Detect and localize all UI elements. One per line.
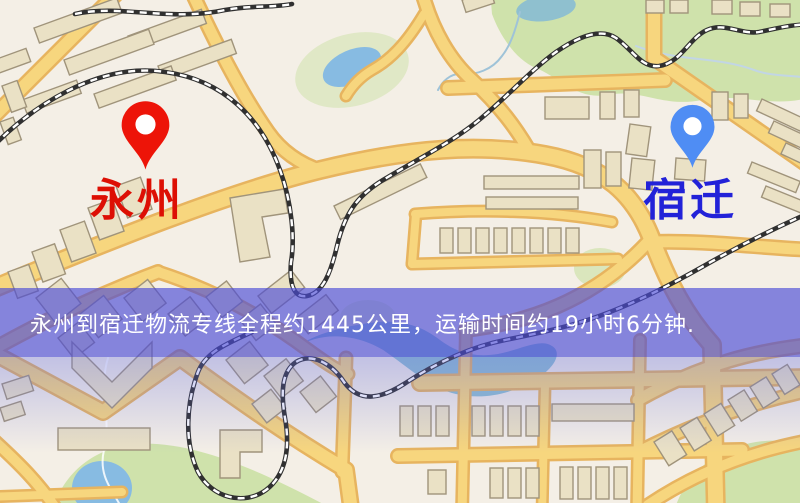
origin-city-label: 永州 [90, 179, 184, 223]
red-location-pin-icon [119, 99, 172, 171]
map-canvas [0, 0, 800, 503]
blue-location-pin-icon [668, 103, 717, 169]
route-info-banner: 永州到宿迁物流专线全程约1445公里，运输时间约19小时6分钟. [0, 288, 800, 357]
destination-city-label: 宿迁 [643, 179, 737, 223]
origin-pin[interactable] [119, 99, 172, 171]
destination-pin[interactable] [668, 103, 717, 169]
map-view[interactable]: 永州到宿迁物流专线全程约1445公里，运输时间约19小时6分钟. 永州 宿迁 [0, 0, 800, 503]
route-info-text: 永州到宿迁物流专线全程约1445公里，运输时间约19小时6分钟. [0, 307, 695, 339]
